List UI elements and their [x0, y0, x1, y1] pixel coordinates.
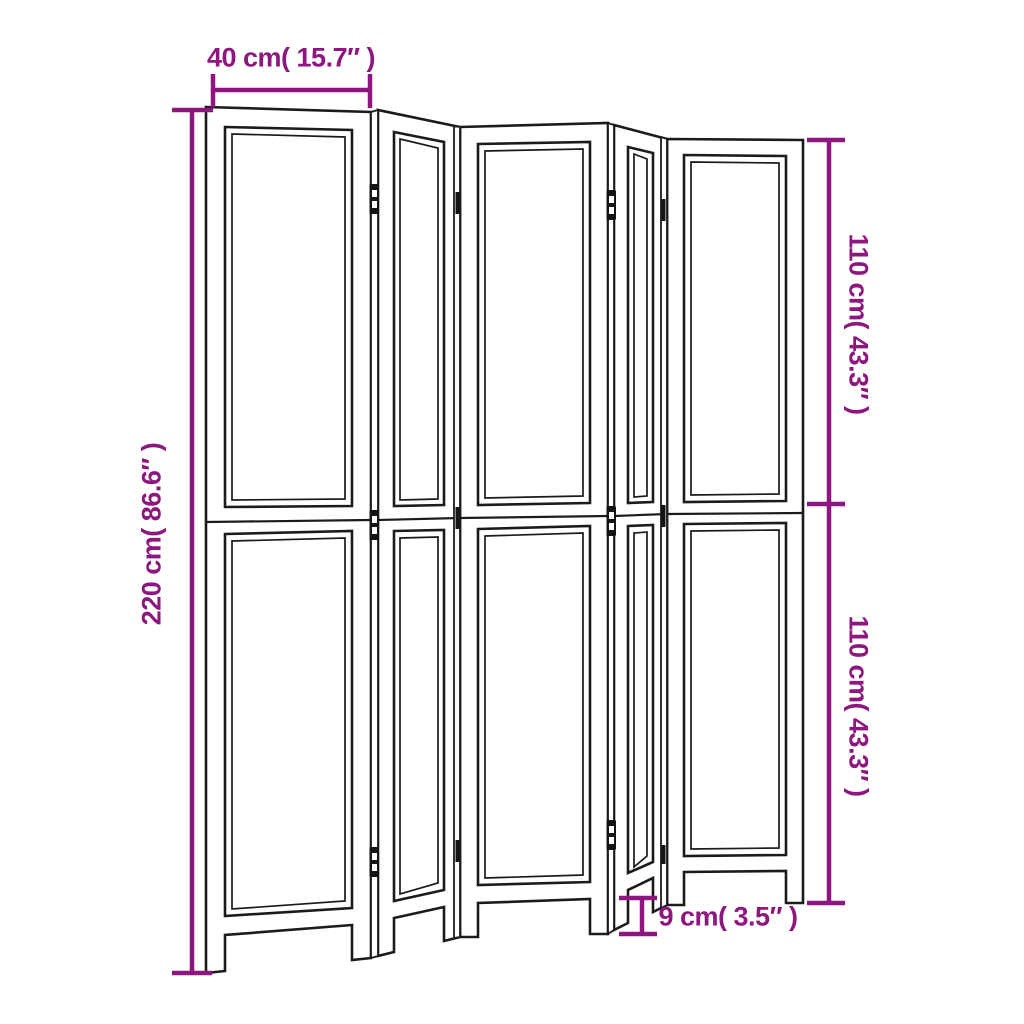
section-height-dimension-line	[807, 140, 845, 903]
width-dimension-label: 40 cm( 15.7″ )	[207, 43, 375, 74]
hinge-icon	[607, 506, 617, 536]
hinge-icon	[370, 847, 380, 877]
panel-5	[667, 139, 803, 905]
panel-1	[206, 107, 371, 973]
hinge-icon	[607, 190, 617, 220]
dimension-diagram: 40 cm( 15.7″ ) 220 cm( 86.6″ ) 110 cm( 4…	[0, 0, 1024, 1024]
upper-section-height-dimension-label: 110 cm( 43.3″ )	[843, 233, 874, 414]
foot-height-dimension-label: 9 cm( 3.5″ )	[659, 902, 798, 933]
panel-4	[614, 125, 667, 930]
lower-section-height-dimension-label: 110 cm( 43.3″ )	[843, 615, 874, 796]
panel-2	[378, 110, 460, 956]
total-height-dimension-label: 220 cm( 86.6″ )	[137, 443, 168, 626]
hinge-icon	[370, 184, 380, 214]
hinge-icon	[370, 510, 380, 540]
width-dimension-line	[213, 74, 370, 108]
hinge-icon	[607, 820, 617, 850]
panel-3	[460, 123, 608, 937]
